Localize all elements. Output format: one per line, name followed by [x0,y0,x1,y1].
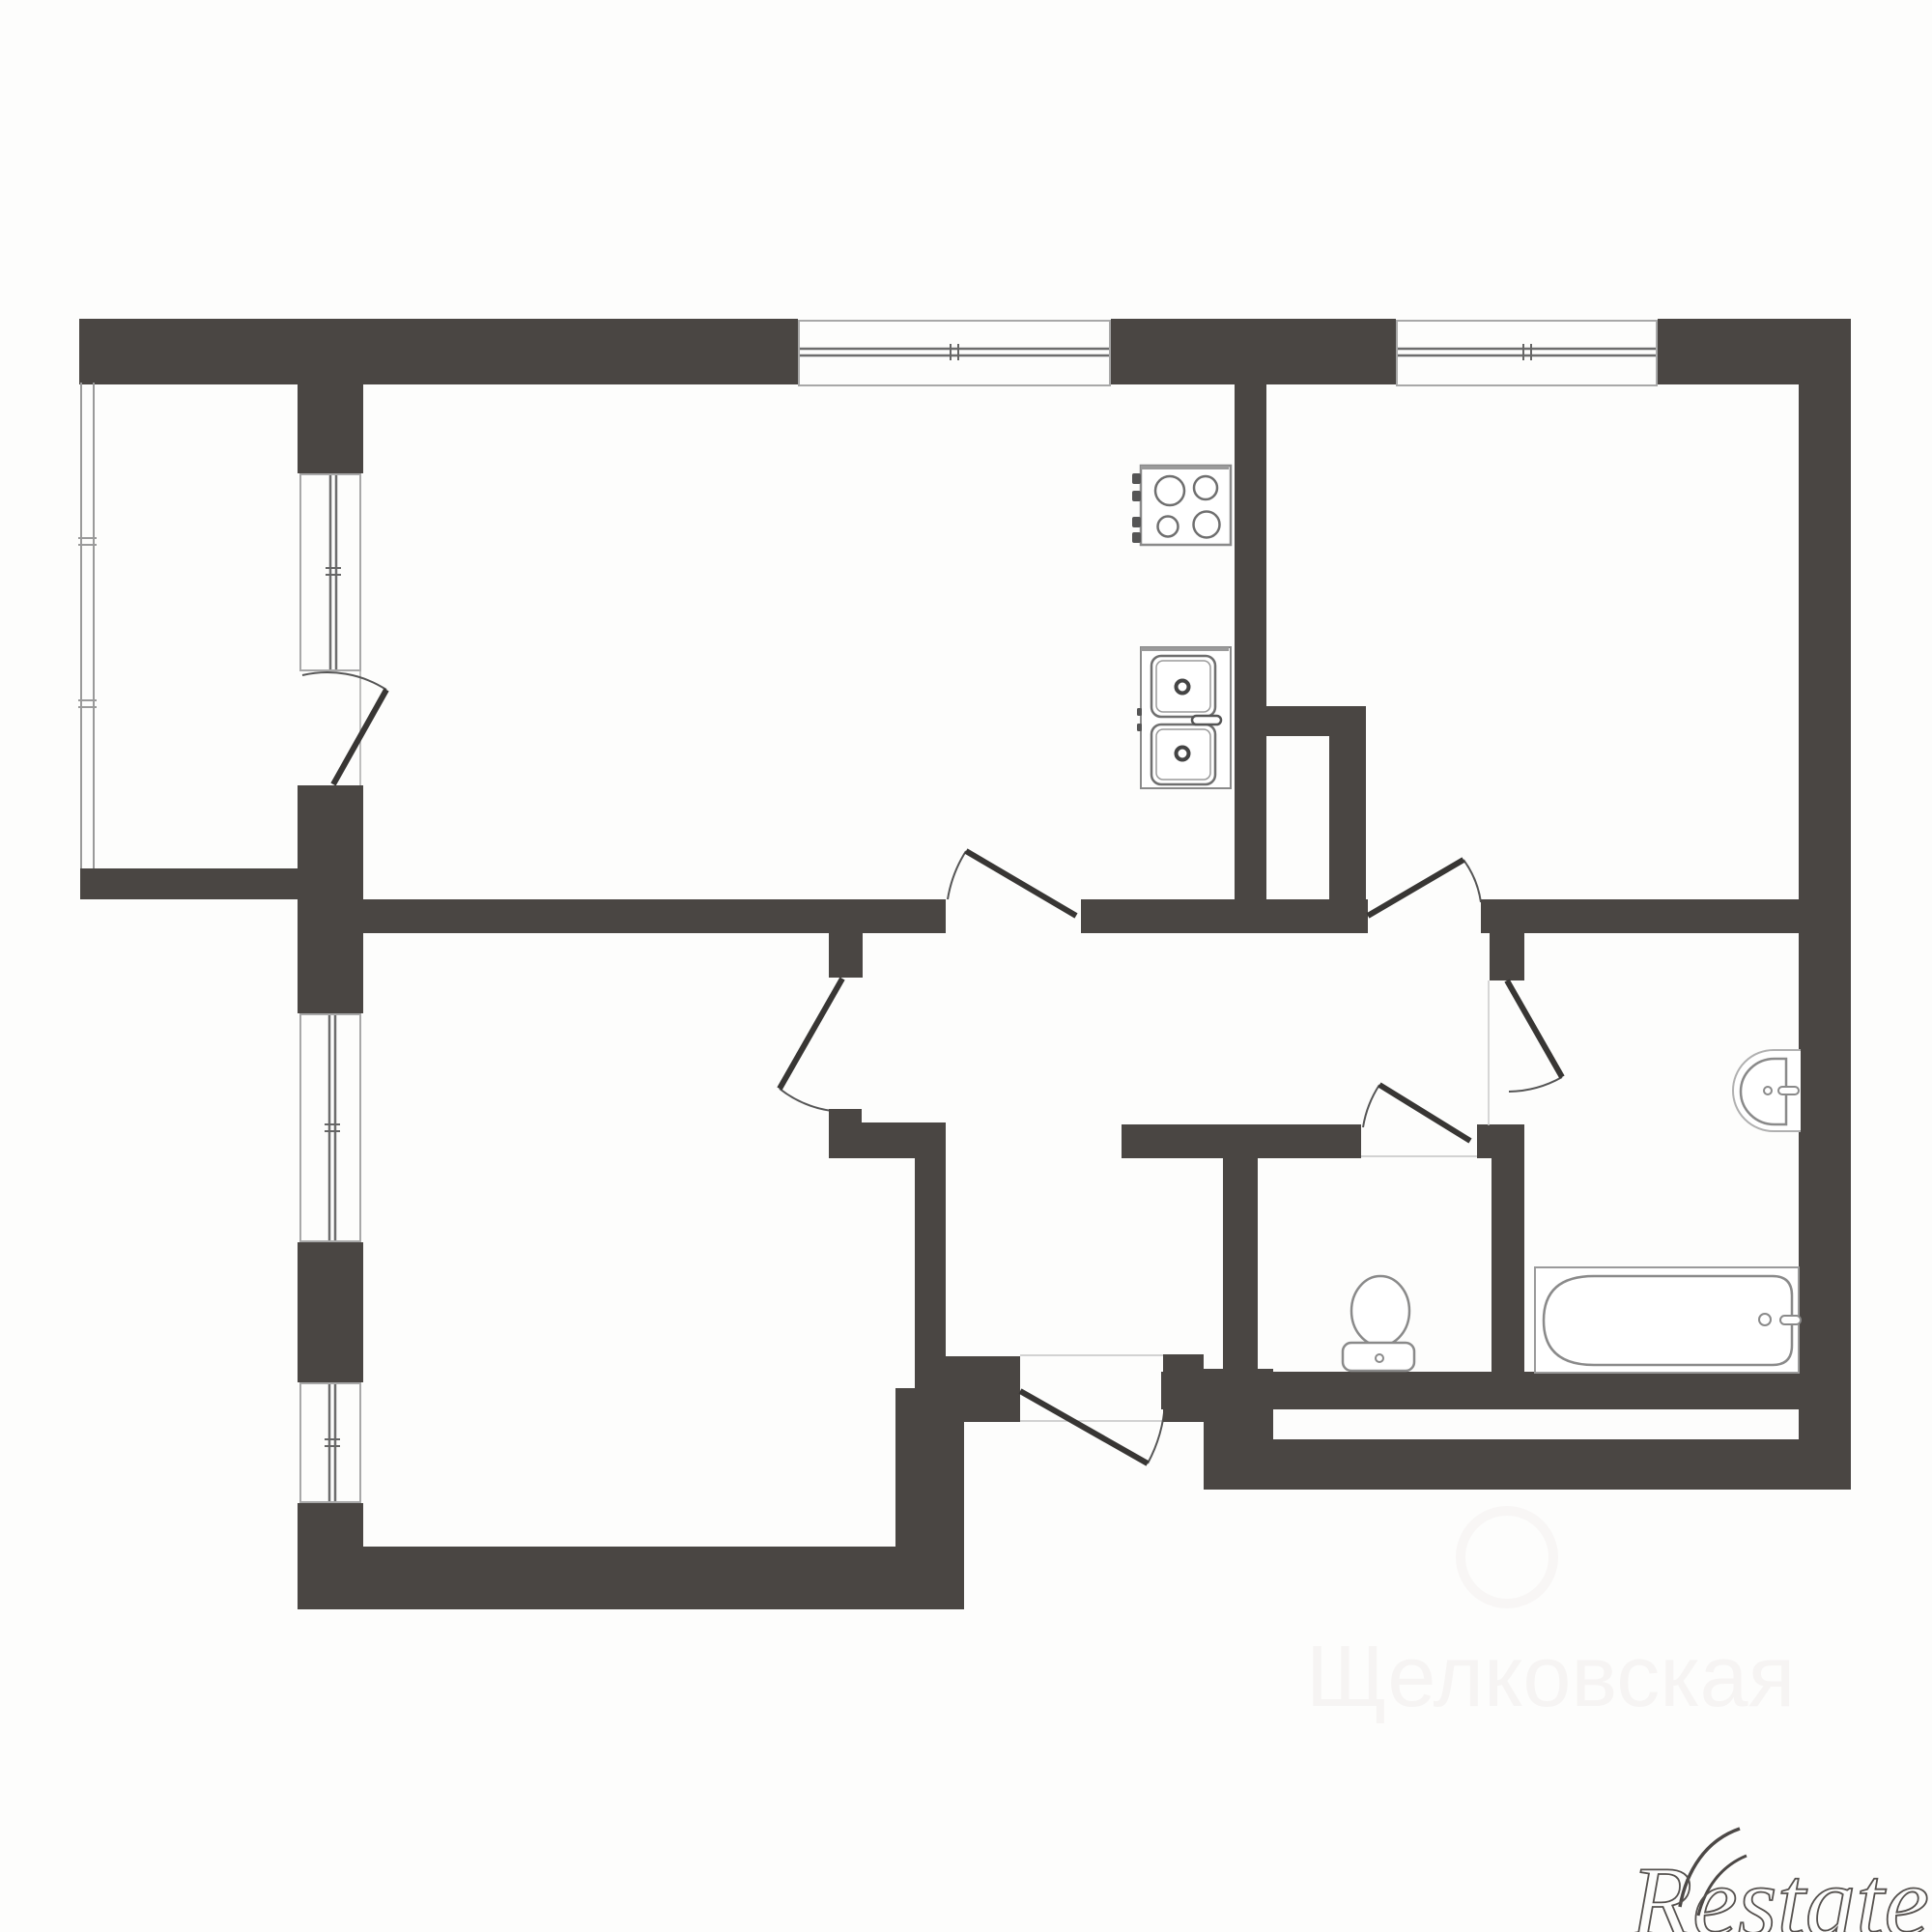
svg-text:Restate: Restate [1630,1845,1929,1932]
svg-text:Щелковская: Щелковская [1306,1629,1795,1725]
